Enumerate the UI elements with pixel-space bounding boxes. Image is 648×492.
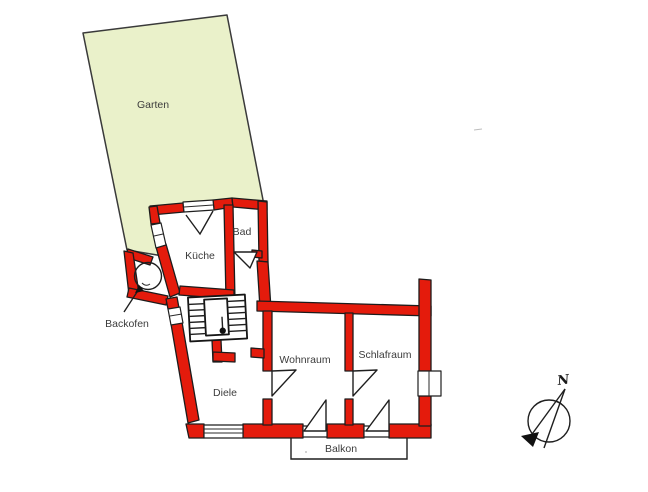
wall-livingroom-top <box>257 301 431 316</box>
room-label-diele: Diele <box>213 387 237 399</box>
wall-bottom-1 <box>186 424 204 438</box>
room-label-garten: Garten <box>137 99 169 111</box>
garden-area: Garten <box>83 15 264 256</box>
garden-polygon <box>83 15 264 256</box>
floor-plan-canvas: Garten <box>0 0 648 492</box>
wall-bath-left <box>224 205 235 300</box>
room-label-balkon: Balkon <box>325 443 357 455</box>
wall-partition-living-bed-lower <box>345 399 353 425</box>
floor-plan-drawing: Garten <box>0 0 648 492</box>
compass-needle-line-1 <box>527 389 565 441</box>
staircase <box>188 295 247 342</box>
room-label-bad: Bad <box>233 226 252 238</box>
wall-bottom-2 <box>243 424 303 438</box>
window-hall-left <box>168 307 183 325</box>
room-label-wohnraum: Wohnraum <box>279 354 330 366</box>
compass-rose-icon: N <box>521 372 571 448</box>
room-label-kueche: Küche <box>185 250 215 262</box>
door-balcony-bed <box>366 400 389 431</box>
compass-needle-line-2 <box>544 389 565 448</box>
wall-right-lower <box>419 396 431 426</box>
wall-bottom-3 <box>327 424 364 438</box>
door-livingroom <box>272 370 296 396</box>
wall-stub-under-stairs-h <box>213 352 235 362</box>
window-kitchen-top <box>183 200 214 212</box>
compass-tail-arrowhead <box>521 432 539 447</box>
wall-partition-hall-living-lower <box>263 399 272 425</box>
window-hall-bottom <box>204 425 243 438</box>
room-label-backofen: Backofen <box>105 318 149 330</box>
wall-partition-living-bed-upper <box>345 313 353 371</box>
door-bath <box>234 252 257 268</box>
balcony-group: Balkon <box>291 438 407 459</box>
wall-doorjamb-hall <box>251 348 264 358</box>
wall-right-upper <box>419 279 431 371</box>
door-balcony-living <box>304 400 326 431</box>
wall-alcove-bottom <box>127 288 168 305</box>
oven-inner-mark <box>142 283 150 285</box>
room-label-schlafraum: Schlafraum <box>358 349 411 361</box>
scan-artifacts <box>305 129 482 453</box>
compass-north-label: N <box>555 372 571 389</box>
door-bedroom <box>353 370 377 396</box>
window-bedroom-right <box>418 371 441 396</box>
door-kitchen-top-swing <box>186 211 213 234</box>
wall-partition-hall-living-upper <box>263 311 272 371</box>
